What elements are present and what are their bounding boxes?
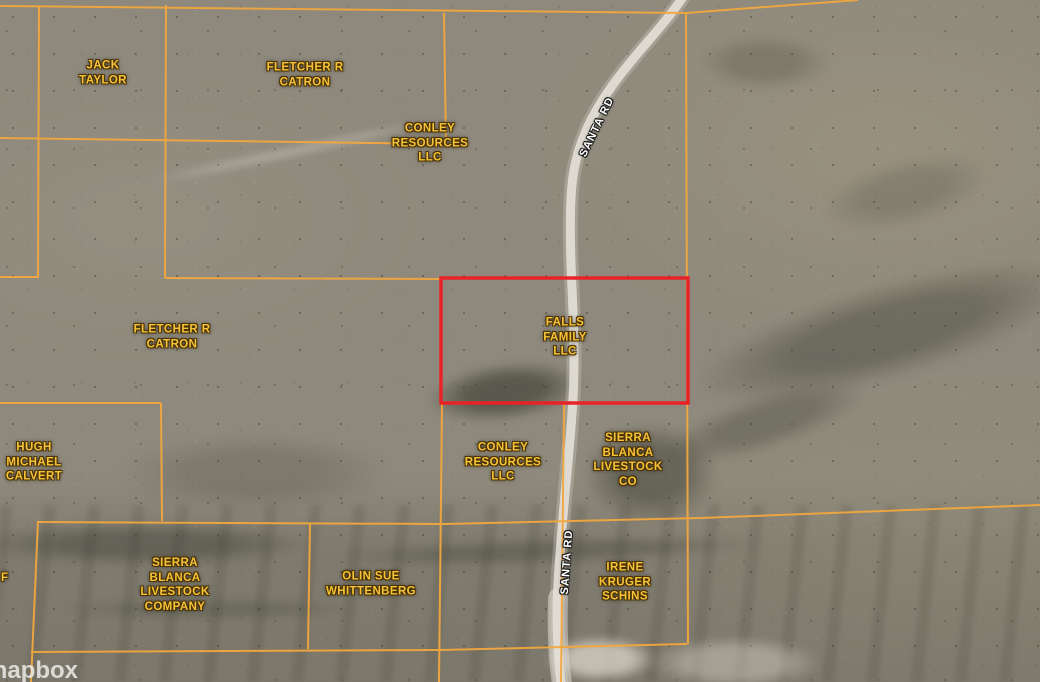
parcel-label-line: RESOURCES	[392, 136, 468, 151]
parcel-label-line: FALLS	[543, 315, 587, 330]
parcel-boundary-line	[0, 138, 446, 144]
parcel-label-line: CATRON	[134, 337, 211, 352]
parcel-boundary-line	[37, 505, 1040, 524]
parcel-boundary-line	[31, 644, 687, 652]
parcel-label-falls-family-llc-highlighted: FALLSFAMILYLLC	[543, 315, 587, 359]
parcel-boundary-line	[38, 6, 39, 277]
parcel-label-sierra-blanca-livestock-company: SIERRABLANCALIVESTOCKCOMPANY	[140, 556, 209, 614]
parcel-boundary-line	[0, 0, 858, 13]
parcel-label-line: BLANCA	[593, 446, 662, 461]
parcel-label-fletcher-r-catron: FLETCHER RCATRON	[134, 323, 211, 352]
map-viewport[interactable]: JACKTAYLORFLETCHER RCATRONCONLEYRESOURCE…	[0, 0, 1040, 682]
parcel-label-jack-taylor: JACKTAYLOR	[79, 59, 127, 88]
parcel-label-line: BLANCA	[140, 571, 209, 586]
parcel-label-line: FLETCHER R	[267, 61, 344, 76]
parcel-label-line: RESOURCES	[465, 455, 541, 470]
parcel-boundary-line	[439, 404, 442, 682]
parcel-label-line: SIERRA	[140, 556, 209, 571]
parcel-boundary-line	[308, 523, 310, 649]
parcel-label-line: CO	[593, 475, 662, 490]
parcel-label-line: FAMILY	[543, 330, 587, 345]
parcel-label-line: LLC	[465, 469, 541, 484]
parcel-label-line: KRUGER	[599, 575, 651, 590]
parcel-label-conley-resources-llc: CONLEYRESOURCESLLC	[392, 121, 468, 165]
parcel-label-line: MICHAEL	[6, 455, 62, 470]
parcel-label-line: COMPANY	[140, 600, 209, 615]
parcel-label-line: FLETCHER R	[134, 323, 211, 338]
parcel-label-conley-resources-llc: CONLEYRESOURCESLLC	[465, 440, 541, 484]
parcel-label-line: SIERRA	[593, 431, 662, 446]
parcel-boundary-line	[161, 403, 162, 521]
parcel-label-f: F	[1, 571, 8, 586]
parcel-label-line: HUGH	[6, 440, 62, 455]
parcel-label-line: IRENE	[599, 560, 651, 575]
parcel-label-olin-sue-whittenberg: OLIN SUEWHITTENBERG	[326, 570, 416, 599]
parcel-label-line: WHITTENBERG	[326, 584, 416, 599]
parcel-boundary-line	[165, 5, 166, 278]
parcel-label-line: CALVERT	[6, 469, 62, 484]
parcel-label-line: JACK	[79, 59, 127, 74]
parcel-label-irene-kruger-schins: IRENEKRUGERSCHINS	[599, 560, 651, 604]
parcel-label-line: LLC	[392, 150, 468, 165]
parcel-label-fletcher-r-catron: FLETCHER RCATRON	[267, 61, 344, 90]
parcel-label-line: LLC	[543, 344, 587, 359]
parcel-label-line: CONLEY	[465, 440, 541, 455]
parcel-label-hugh-michael-calvert: HUGHMICHAELCALVERT	[6, 440, 62, 484]
parcel-label-line: CONLEY	[392, 121, 468, 136]
parcel-label-line: CATRON	[267, 75, 344, 90]
parcel-label-line: SCHINS	[599, 589, 651, 604]
parcel-label-line: LIVESTOCK	[593, 460, 662, 475]
mapbox-watermark: mapbox	[0, 657, 78, 682]
parcel-label-sierra-blanca-livestock-co: SIERRABLANCALIVESTOCKCO	[593, 431, 662, 489]
parcel-label-line: F	[1, 571, 8, 586]
parcel-label-line: LIVESTOCK	[140, 585, 209, 600]
parcel-label-line: OLIN SUE	[326, 570, 416, 585]
parcel-label-line: TAYLOR	[79, 73, 127, 88]
parcel-boundary-line	[165, 278, 443, 279]
